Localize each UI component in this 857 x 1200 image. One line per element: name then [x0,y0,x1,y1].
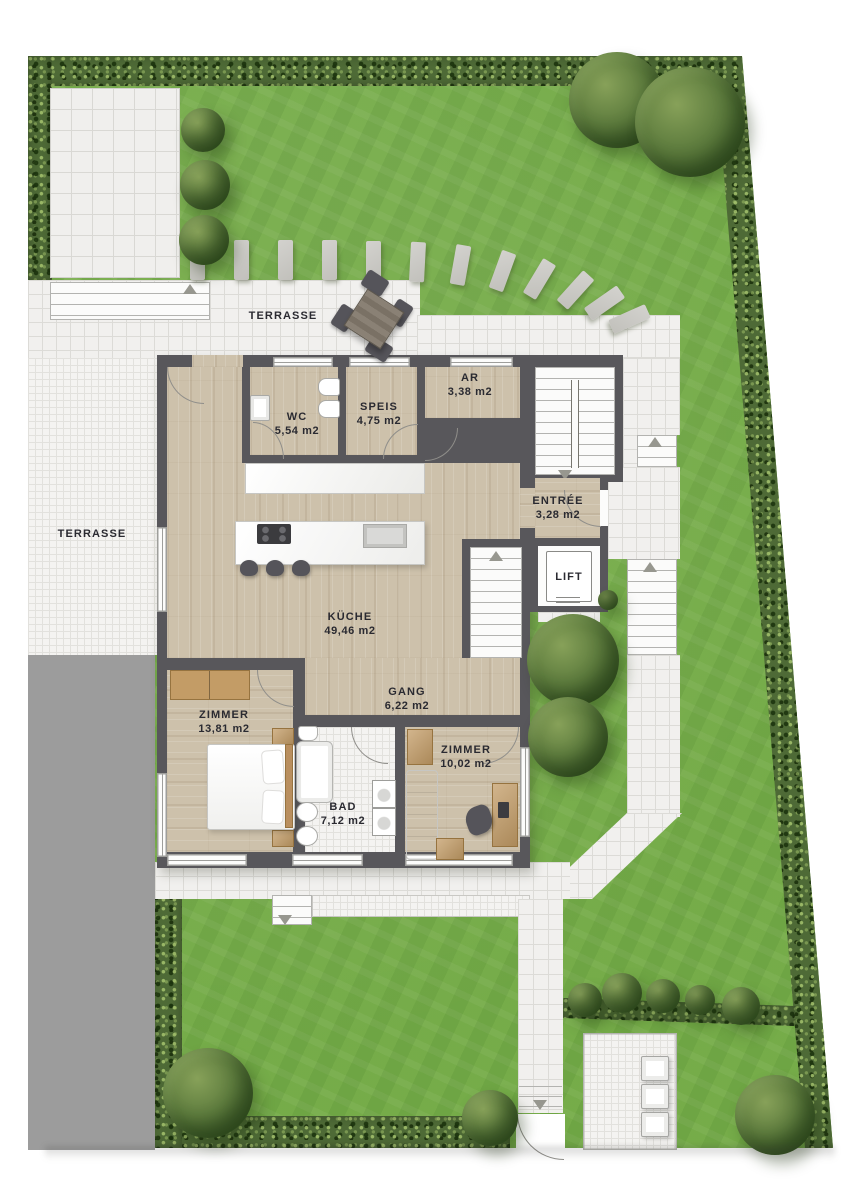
room-name: GANG [385,685,430,699]
label-terrace-west: TERRASSE [58,527,127,541]
sink [363,524,407,548]
toilet [298,726,318,741]
laptop [498,802,509,818]
room-name: ENTRÉE [532,494,583,508]
bar-stool [240,560,258,576]
terrace-west-text: TERRASSE [58,528,127,540]
driveway [28,655,155,1150]
room-area: 3,28 m2 [532,508,583,522]
bush [598,590,618,610]
label-kueche: KÜCHE 49,46 m2 [324,610,375,638]
nightstand [272,830,294,847]
bed-headboard [285,744,293,828]
pillow [261,789,285,824]
wall-stair-left [462,547,470,658]
washing-machine [372,780,396,808]
wall-kueche-zimmer [157,658,252,670]
garden-strip [312,895,530,917]
bush [163,1048,253,1138]
stepping-stone [278,240,293,280]
wall-wc-bottom [283,455,385,463]
toilet [318,378,340,396]
room-name: ZIMMER [198,708,249,722]
bathtub [296,741,333,803]
window-wc [273,357,333,367]
nightstand [272,728,294,745]
pillow [261,749,285,784]
stairs-east [627,559,677,655]
stepping-stone [322,240,337,280]
dryer [372,808,396,836]
tree [735,1075,815,1155]
bush [568,983,602,1017]
stairs-east-arrow-icon [643,562,657,572]
hedge-right [700,56,840,1148]
sofa-side-table [436,838,464,860]
door-terrace-opening [192,355,243,367]
label-lift: LIFT [555,570,583,584]
stepping-stone [234,240,249,280]
wardrobe [170,670,250,700]
label-zimmer-2: ZIMMER 10,02 m2 [440,743,491,771]
room-area: 49,46 m2 [324,624,375,638]
label-bad: BAD 7,12 m2 [321,800,366,828]
room-name: KÜCHE [324,610,375,624]
site-shadow [45,1146,835,1160]
label-ar: AR 3,38 m2 [448,371,493,399]
room-name: LIFT [555,571,583,583]
room-area: 3,38 m2 [448,385,493,399]
window-kueche-west [157,527,167,612]
bush [181,108,225,152]
steps-upper-arrow-icon [183,284,197,294]
wall-wc-left [242,367,250,463]
bar-stool [292,560,310,576]
wall-bad-zimmer-2 [395,727,405,852]
window-zimmer-1-west [157,773,167,857]
room-area: 5,54 m2 [275,424,320,438]
bush [646,979,680,1013]
tree [527,614,619,706]
bush [180,160,230,210]
washbasin [296,802,318,822]
tree [528,697,608,777]
tree [462,1090,518,1146]
room-area: 7,12 m2 [321,814,366,828]
strip-steps-arrow-icon [278,915,292,925]
garden-path-south [518,899,563,1113]
window-bad-south [292,854,363,866]
room-name: WC [275,410,320,424]
terrace-north-text: TERRASSE [249,310,318,322]
waste-bin [641,1112,669,1137]
wall-stair-top [462,539,520,547]
window-zimmer-2-east [520,747,530,837]
path-northeast-sliver [623,435,637,467]
lift-door [556,597,580,603]
room-name: BAD [321,800,366,814]
sofa [406,770,438,860]
label-wc: WC 5,54 m2 [275,410,320,438]
window-ar [450,357,513,367]
bush [602,973,642,1013]
kitchen-counter [245,463,425,494]
bush [722,987,760,1025]
window-zimmer-1-south [167,854,247,866]
waste-bin [641,1056,669,1081]
bar-stool [266,560,284,576]
stairs-interior-arrow-icon [489,551,503,561]
cabinet [407,729,433,765]
hedge-left [28,56,52,280]
room-area: 10,02 m2 [440,757,491,771]
label-gang: GANG 6,22 m2 [385,685,430,713]
bush [179,215,229,265]
path-south-arrow-icon [533,1100,547,1110]
steps-northeast-arrow-icon [648,437,662,447]
washbasin [250,395,270,421]
wall-gang-bottom-b [387,715,482,727]
path-east-lower [627,655,680,817]
label-terrace-north: TERRASSE [249,309,318,323]
stove [257,524,291,544]
waste-bin [641,1084,669,1109]
room-name: AR [448,371,493,385]
label-speis: SPEIS 4,75 m2 [357,400,402,428]
room-name: ZIMMER [440,743,491,757]
label-entree: ENTRÉE 3,28 m2 [532,494,583,522]
label-zimmer-1: ZIMMER 13,81 m2 [198,708,249,736]
terrace-west [28,358,157,655]
floor-plan: TERRASSE TERRASSE WC 5,54 m2 SPEIS 4,75 … [0,0,857,1200]
room-name: SPEIS [357,400,402,414]
entree-door-opening [600,490,608,526]
room-area: 4,75 m2 [357,414,402,428]
room-area: 13,81 m2 [198,722,249,736]
upper-patio [50,88,180,278]
tree [635,67,745,177]
bush [685,985,715,1015]
stairs-interior [470,547,522,658]
wall-speis-ar [417,367,425,463]
wall-ar-bottom [440,418,520,428]
stepping-stone [409,242,426,283]
path-northeast [623,358,680,435]
toilet [318,400,340,418]
washbasin [296,826,318,846]
stairwell-railing [571,380,579,468]
room-area: 6,22 m2 [385,699,430,713]
